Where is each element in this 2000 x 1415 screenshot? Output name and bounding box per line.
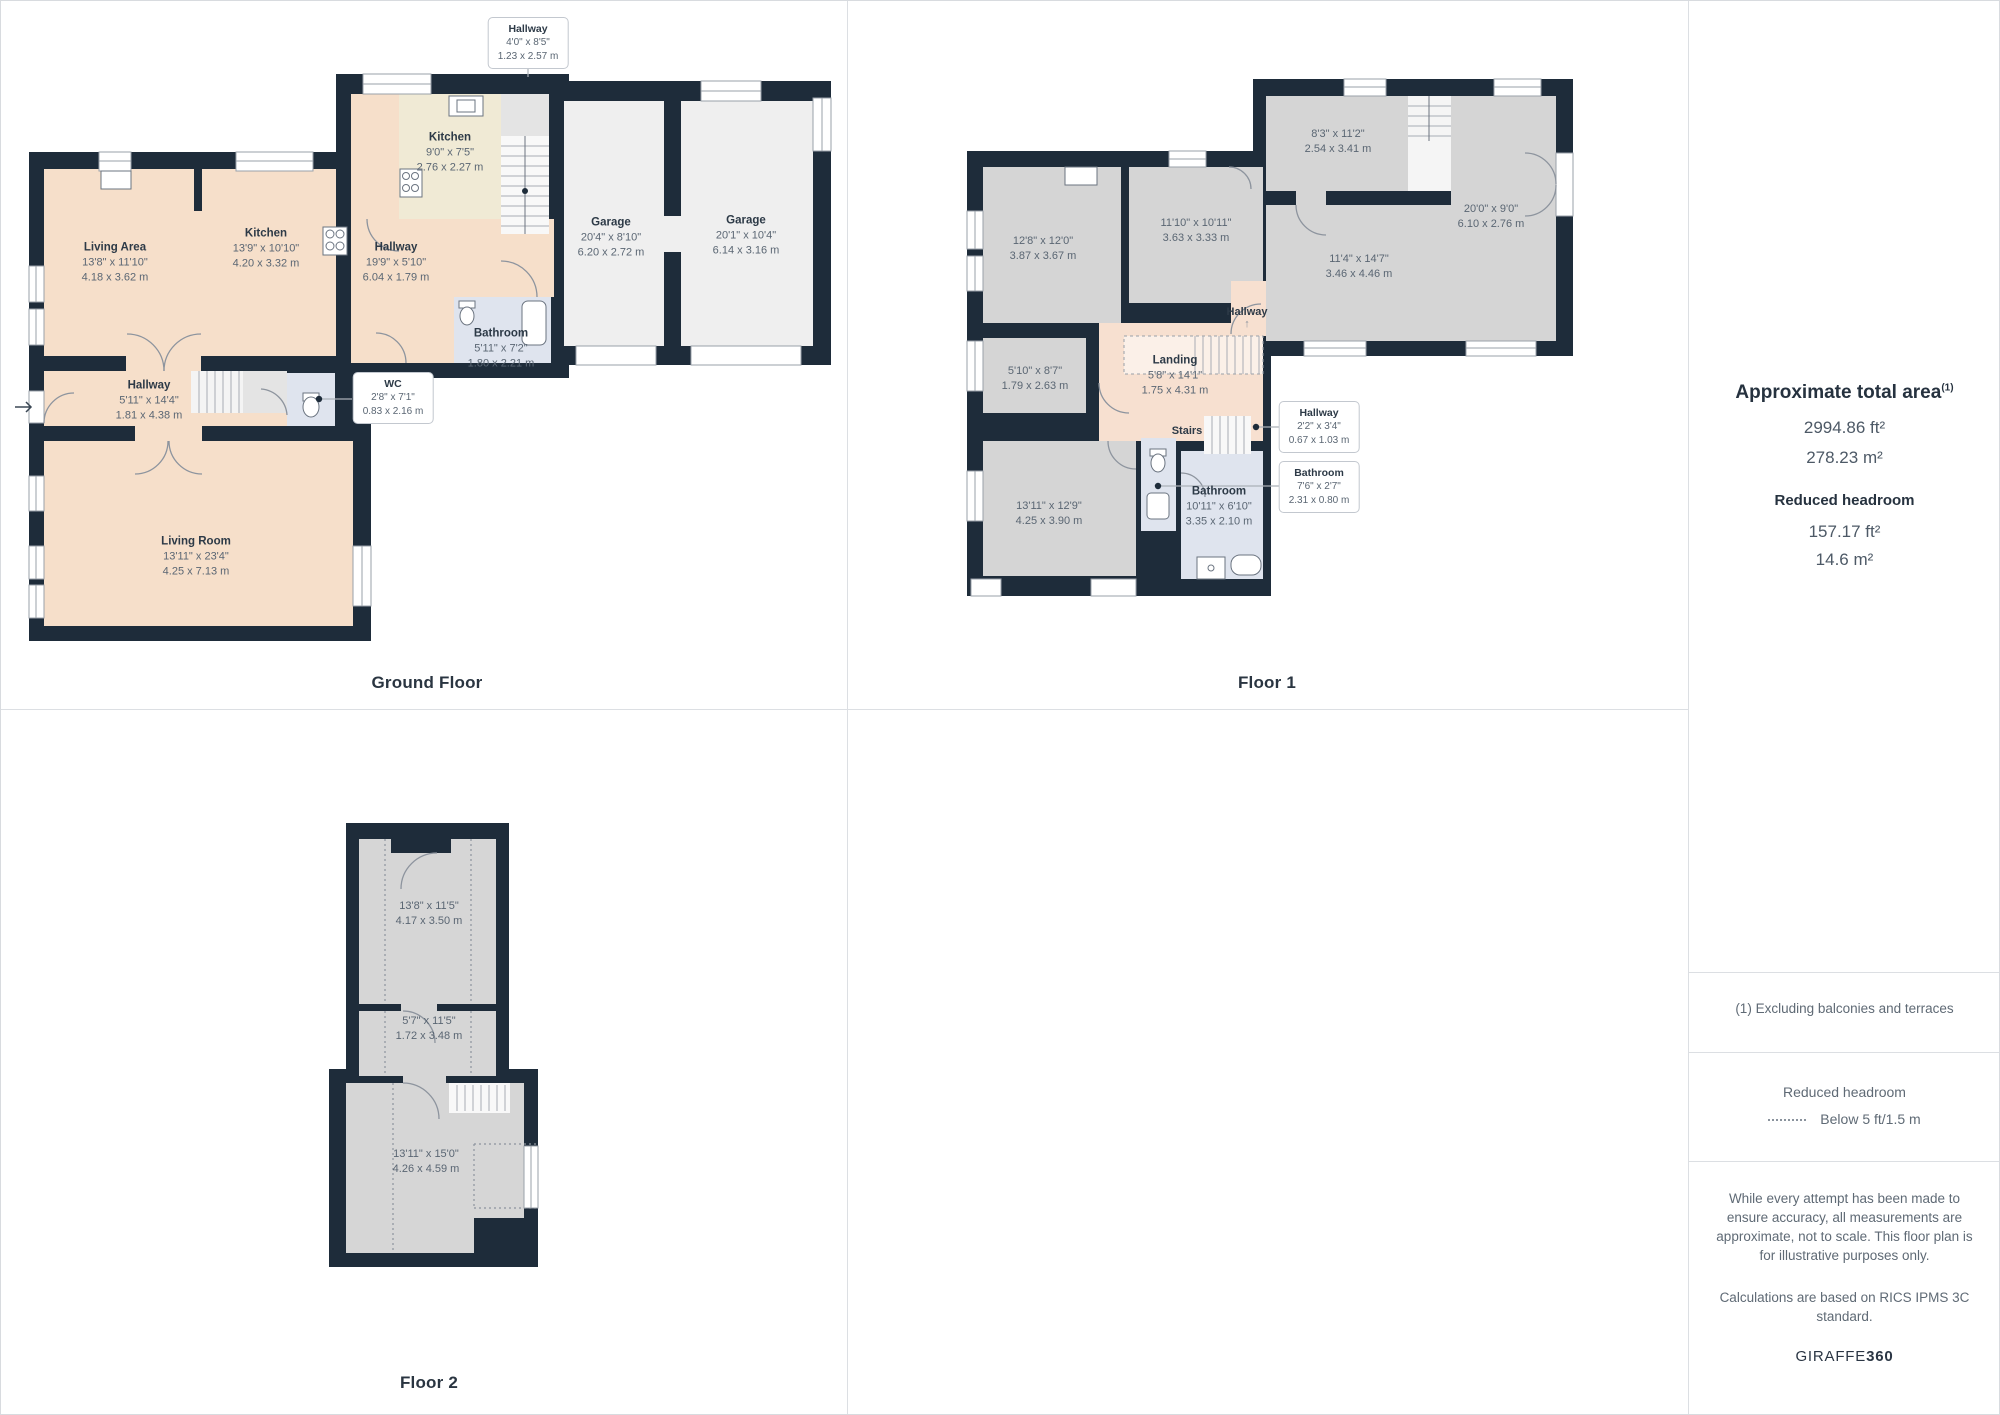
floor2-panel: 13'8" x 11'5" 4.17 x 3.50 m 5'7" x 11'5"… [1, 709, 847, 1415]
floor2-plan [1, 709, 847, 1415]
floorplan-page: Living Area 13'8" x 11'10" 4.18 x 3.62 m… [0, 0, 2000, 1415]
stairs-label: Stairs [1172, 425, 1203, 437]
floor2-title: Floor 2 [400, 1373, 458, 1393]
sidebar-divider-2 [1688, 1052, 2000, 1053]
callout-wc: WC 2'8" x 7'1" 0.83 x 2.16 m [353, 372, 434, 424]
room-label-garage-1: Garage 20'4" x 8'10" 6.20 x 2.72 m [578, 216, 645, 261]
callout-hallway-f1: Hallway 2'2" x 3'4" 0.67 x 1.03 m [1279, 401, 1360, 453]
floor1-panel: 12'8" x 12'0" 3.87 x 3.67 m 11'10" x 10'… [847, 1, 1688, 709]
reduced-headroom-title: Reduced headroom [1688, 492, 2000, 509]
ground-floor-panel: Living Area 13'8" x 11'10" 4.18 x 3.62 m… [1, 1, 847, 709]
room-label-room-5x8: 5'10" x 8'7" 1.79 x 2.63 m [1002, 364, 1069, 394]
legend-row: Below 5 ft/1.5 m [1688, 1111, 2000, 1127]
room-label-room-11x14: 11'4" x 14'7" 3.46 x 4.46 m [1326, 252, 1393, 282]
standard-text: Calculations are based on RICS IPMS 3C s… [1688, 1288, 2000, 1326]
total-area-m: 278.23 m² [1688, 448, 2000, 468]
up-arrow-icon: ↑ [1227, 318, 1268, 330]
room-label-f2-bottom: 13'11" x 15'0" 4.26 x 4.59 m [393, 1147, 460, 1177]
total-area-title: Approximate total area(1) [1688, 382, 2000, 404]
divider-vertical-sidebar [1688, 1, 1689, 1415]
divider-vertical-middle [847, 1, 848, 1415]
hallway-small-label: Hallway ↑ [1227, 306, 1268, 330]
giraffe360-logo: GIRAFFE360 [1688, 1348, 2000, 1365]
sidebar-divider-3 [1688, 1161, 2000, 1162]
callout-bathroom-f1: Bathroom 7'6" x 2'7" 2.31 x 0.80 m [1279, 461, 1360, 513]
ground-floor-plan [1, 1, 847, 709]
reduced-headroom-m: 14.6 m² [1688, 550, 2000, 570]
room-label-bathroom: Bathroom 5'11" x 7'2" 1.80 x 2.21 m [468, 327, 535, 372]
empty-panel [847, 709, 1688, 1415]
room-label-living-area: Living Area 13'8" x 11'10" 4.18 x 3.62 m [82, 241, 149, 286]
room-label-landing: Landing 5'8" x 14'1" 1.75 x 4.31 m [1142, 354, 1209, 399]
room-label-room-13x12: 13'11" x 12'9" 4.25 x 3.90 m [1016, 499, 1083, 529]
summary-sidebar: Approximate total area(1) 2994.86 ft² 27… [1688, 1, 2000, 1415]
legend-label: Below 5 ft/1.5 m [1820, 1111, 1920, 1127]
total-area-ft: 2994.86 ft² [1688, 418, 2000, 438]
room-label-f2-mid: 5'7" x 11'5" 1.72 x 3.48 m [396, 1014, 463, 1044]
footnote-ref: (1) [1941, 383, 1953, 394]
disclaimer-text: While every attempt has been made to ens… [1688, 1189, 2000, 1265]
room-label-kitchen-small: Kitchen 9'0" x 7'5" 2.76 x 2.27 m [417, 131, 484, 176]
room-label-room-20x9: 20'0" x 9'0" 6.10 x 2.76 m [1458, 202, 1525, 232]
callout-hallway-top: Hallway 4'0" x 8'5" 1.23 x 2.57 m [488, 17, 569, 69]
divider-horizontal [1, 709, 1688, 710]
room-label-bathroom-f1: Bathroom 10'11" x 6'10" 3.35 x 2.10 m [1186, 485, 1253, 530]
floor1-plan [847, 1, 1688, 709]
room-label-bed1: 12'8" x 12'0" 3.87 x 3.67 m [1010, 234, 1077, 264]
room-label-bed3: 8'3" x 11'2" 2.54 x 3.41 m [1305, 127, 1372, 157]
floor1-title: Floor 1 [1238, 673, 1296, 693]
footnote-text: (1) Excluding balconies and terraces [1688, 1001, 2000, 1016]
dotted-line-swatch [1768, 1119, 1806, 1121]
room-label-f2-top: 13'8" x 11'5" 4.17 x 3.50 m [396, 899, 463, 929]
room-label-bed2: 11'10" x 10'11" 3.63 x 3.33 m [1161, 216, 1232, 246]
ground-floor-title: Ground Floor [372, 673, 483, 693]
legend-title: Reduced headroom [1688, 1084, 2000, 1100]
room-label-hallway-main: Hallway 19'9" x 5'10" 6.04 x 1.79 m [363, 241, 430, 286]
room-label-kitchen-main: Kitchen 13'9" x 10'10" 4.20 x 3.32 m [233, 227, 300, 272]
reduced-headroom-ft: 157.17 ft² [1688, 522, 2000, 542]
room-label-hallway-row: Hallway 5'11" x 14'4" 1.81 x 4.38 m [116, 379, 183, 424]
sidebar-divider-1 [1688, 972, 2000, 973]
room-label-garage-2: Garage 20'1" x 10'4" 6.14 x 3.16 m [713, 214, 780, 259]
room-label-living-room: Living Room 13'11" x 23'4" 4.25 x 7.13 m [161, 535, 231, 580]
